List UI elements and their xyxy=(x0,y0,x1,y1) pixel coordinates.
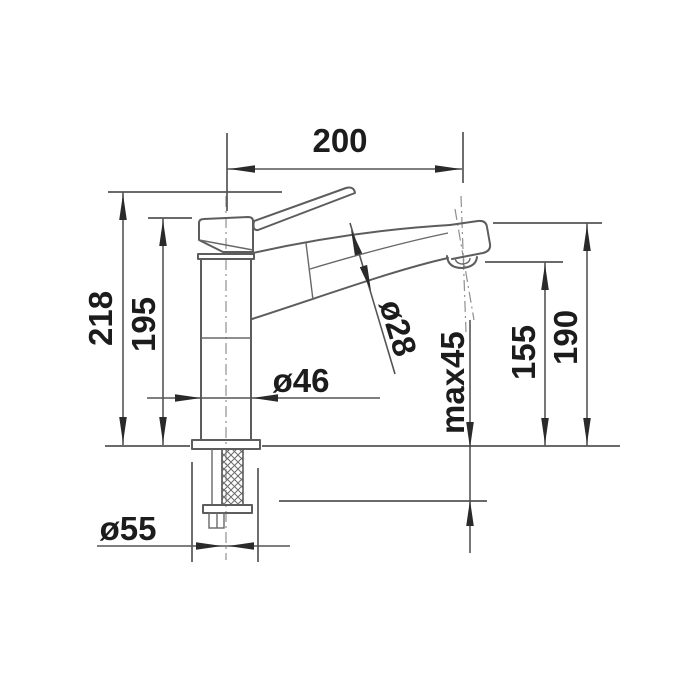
label-base-diameter: ø55 xyxy=(100,510,157,547)
label-body-height: 195 xyxy=(125,297,162,352)
label-spout-diameter: ø28 xyxy=(372,295,424,360)
spout-bottom-edge xyxy=(252,258,448,319)
arrow-base-diameter-left xyxy=(196,542,222,550)
spray-head-cross-seam xyxy=(306,243,313,300)
arrow-outlet-clearance-top xyxy=(541,264,549,290)
supply-pipe xyxy=(212,449,222,505)
label-reach: 200 xyxy=(312,122,367,159)
label-outlet-height: 190 xyxy=(547,310,584,365)
arrow-base-diameter-right xyxy=(228,542,254,550)
dimension-labels: 200 218 195 ø46 ø28 max45 155 190 ø55 xyxy=(82,122,584,547)
faucet-drawing-svg: 200 218 195 ø46 ø28 max45 155 190 ø55 xyxy=(0,0,700,700)
arrow-body-height-bottom xyxy=(159,417,167,443)
reference-lines xyxy=(105,132,620,562)
base-flange xyxy=(192,440,260,449)
arrow-total-height-bottom xyxy=(119,417,127,443)
threaded-shank xyxy=(222,449,243,505)
label-max-deck-thickness: max45 xyxy=(434,331,471,434)
arrow-spout-diameter-bottom xyxy=(360,265,371,291)
arrow-body-diameter-left xyxy=(175,394,201,402)
collar-ring xyxy=(198,254,254,259)
label-total-height: 218 xyxy=(82,291,119,346)
arrow-outlet-height-bottom xyxy=(583,418,591,444)
arrow-outlet-clearance-bottom xyxy=(541,418,549,444)
label-body-diameter: ø46 xyxy=(273,362,330,399)
arrow-total-height-top xyxy=(119,194,127,220)
technical-drawing: 200 218 195 ø46 ø28 max45 155 190 ø55 xyxy=(0,0,700,700)
arrow-outlet-height-top xyxy=(583,225,591,251)
mounting-washer xyxy=(203,505,252,513)
arrow-deck-thickness-bottom xyxy=(466,500,474,526)
label-outlet-clearance: 155 xyxy=(505,325,542,380)
lever-handle xyxy=(254,188,356,231)
arrow-reach-left xyxy=(229,165,255,173)
arrow-body-height-top xyxy=(159,220,167,246)
spout-end-piece xyxy=(450,221,490,259)
arrow-reach-right xyxy=(435,165,461,173)
